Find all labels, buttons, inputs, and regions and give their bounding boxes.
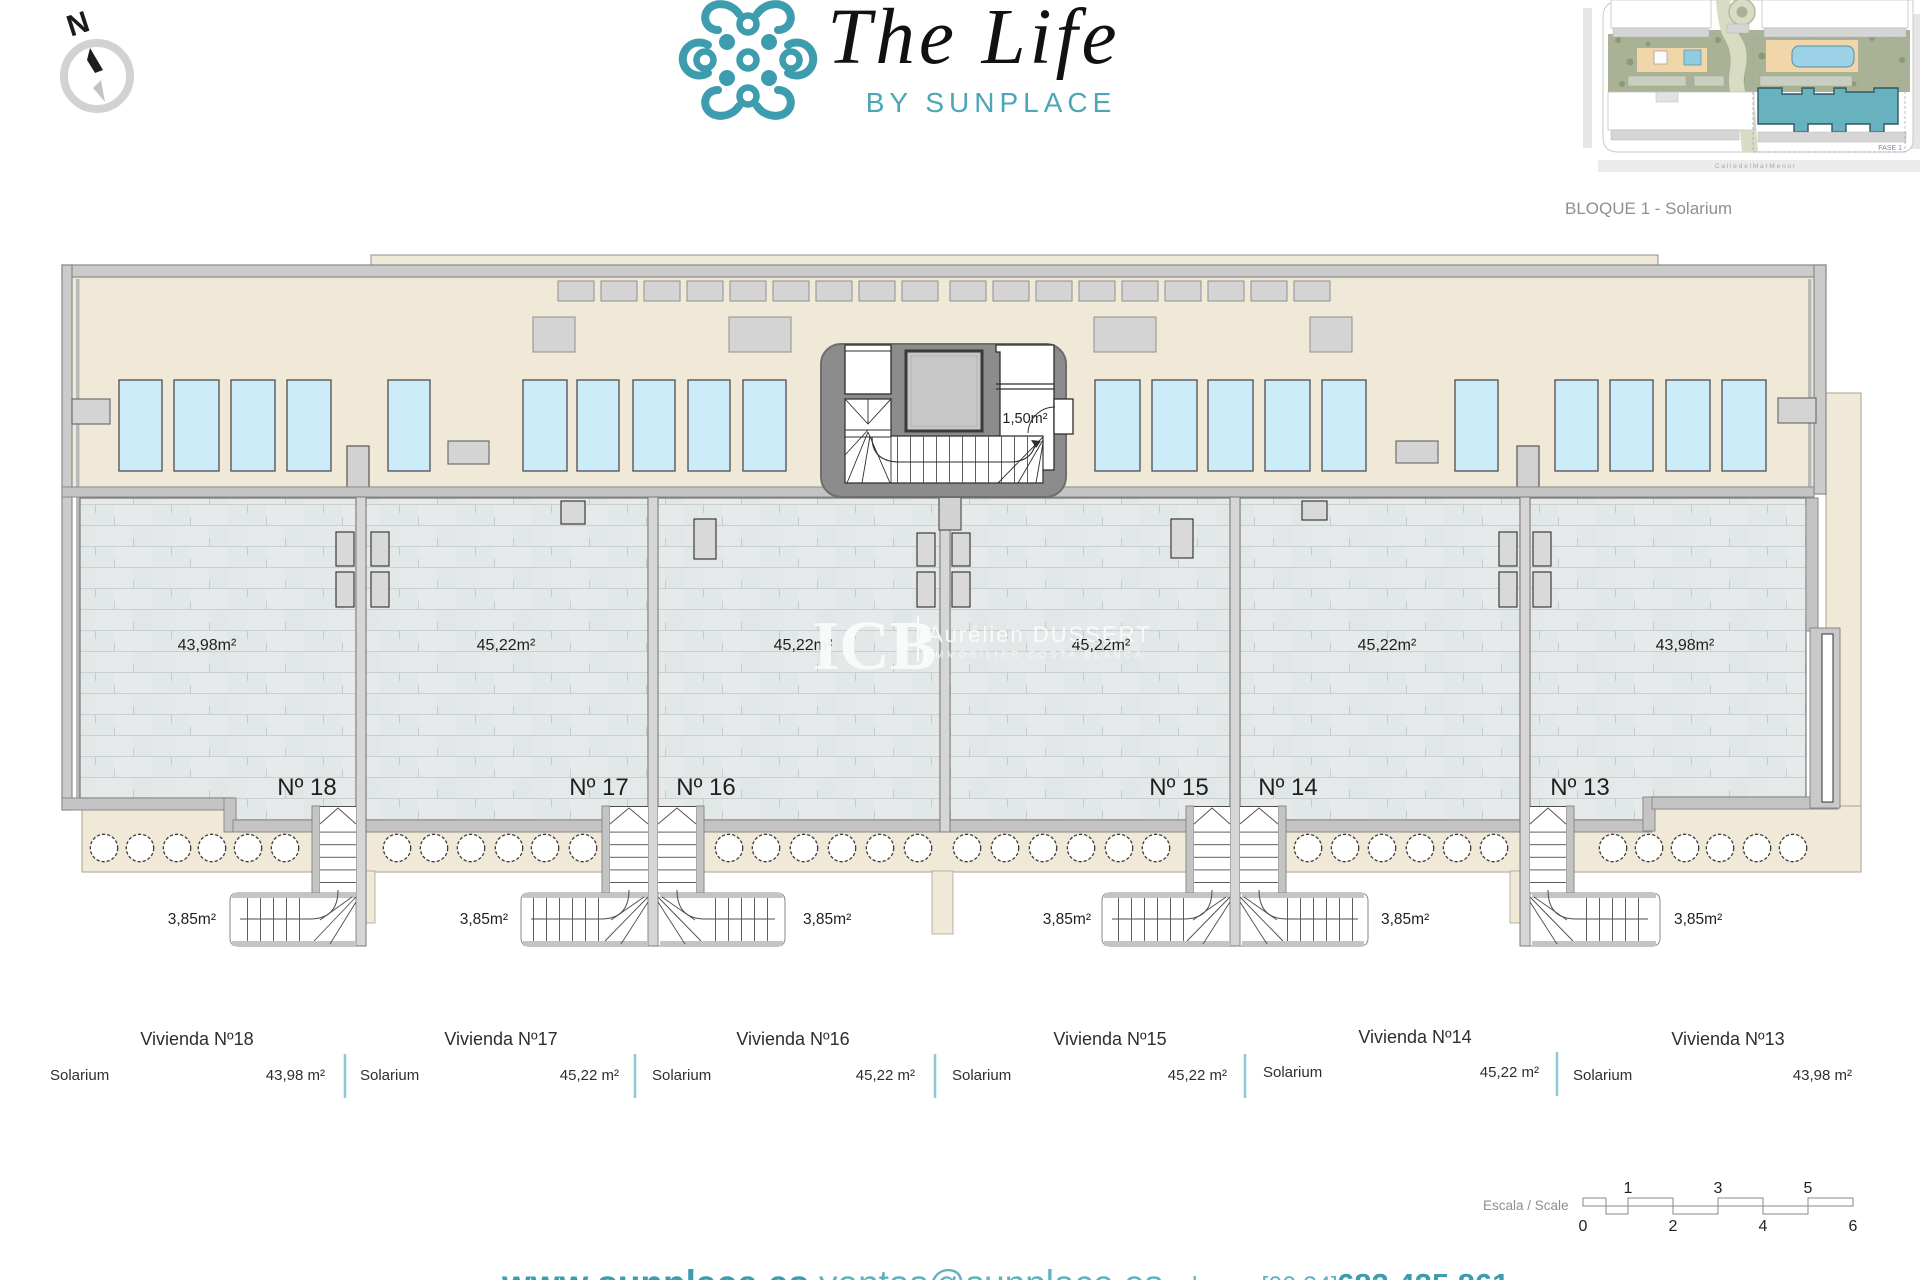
svg-text:43,98 m²: 43,98 m² <box>266 1067 325 1084</box>
svg-text:-: - <box>1146 1267 1157 1280</box>
svg-text:43,98m²: 43,98m² <box>178 637 237 654</box>
svg-text:C a l l e d e l M a r M e n: C a l l e d e l M a r M e n o r <box>1715 163 1796 170</box>
svg-text:3,85m²: 3,85m² <box>1043 911 1091 928</box>
svg-text:45,22 m²: 45,22 m² <box>1480 1064 1539 1081</box>
svg-text:1,50m²: 1,50m² <box>1002 411 1047 427</box>
svg-text:2: 2 <box>1669 1218 1678 1235</box>
svg-text:IMMOBILIER COSTA BLANCA: IMMOBILIER COSTA BLANCA <box>929 650 1145 661</box>
svg-text:Aurélien DUSSERT: Aurélien DUSSERT <box>928 622 1152 647</box>
svg-text:www.sunplace.es: www.sunplace.es <box>501 1263 809 1280</box>
svg-text:Nº 16: Nº 16 <box>676 774 735 801</box>
svg-text:Nº 15: Nº 15 <box>1149 774 1208 801</box>
svg-text:Solarium: Solarium <box>50 1067 109 1084</box>
svg-text:3,85m²: 3,85m² <box>803 911 851 928</box>
svg-text:Vivienda Nº18: Vivienda Nº18 <box>140 1029 253 1049</box>
svg-text:Solarium: Solarium <box>1263 1064 1322 1081</box>
svg-text:Nº 18: Nº 18 <box>277 774 336 801</box>
svg-text:phone: [00 34]: phone: [00 34] <box>1178 1272 1338 1280</box>
svg-text:The Life: The Life <box>827 0 1120 81</box>
svg-text:Vivienda Nº16: Vivienda Nº16 <box>736 1029 849 1049</box>
svg-text:43,98 m²: 43,98 m² <box>1793 1067 1852 1084</box>
svg-text:6: 6 <box>1849 1218 1858 1235</box>
svg-text:Vivienda Nº17: Vivienda Nº17 <box>444 1029 557 1049</box>
svg-text:Nº 17: Nº 17 <box>569 774 628 801</box>
svg-text:0: 0 <box>1579 1218 1588 1235</box>
svg-text:682 425 861: 682 425 861 <box>1337 1267 1509 1280</box>
svg-text:Solarium: Solarium <box>360 1067 419 1084</box>
svg-text:Vivienda Nº15: Vivienda Nº15 <box>1053 1029 1166 1049</box>
svg-text:45,22 m²: 45,22 m² <box>856 1067 915 1084</box>
svg-text:45,22 m²: 45,22 m² <box>560 1067 619 1084</box>
svg-text:3,85m²: 3,85m² <box>1381 911 1429 928</box>
svg-text:Solarium: Solarium <box>952 1067 1011 1084</box>
svg-text:BLOQUE 1 - Solarium: BLOQUE 1 - Solarium <box>1565 199 1732 218</box>
svg-text:-: - <box>788 1267 799 1280</box>
svg-text:Nº 13: Nº 13 <box>1550 774 1609 801</box>
svg-text:45,22m²: 45,22m² <box>477 637 536 654</box>
svg-text:3,85m²: 3,85m² <box>1674 911 1722 928</box>
svg-text:Vivienda Nº13: Vivienda Nº13 <box>1671 1029 1784 1049</box>
svg-text:1: 1 <box>1624 1180 1633 1197</box>
svg-text:3,85m²: 3,85m² <box>168 911 216 928</box>
svg-text:43,98m²: 43,98m² <box>1656 637 1715 654</box>
svg-text:3: 3 <box>1714 1180 1723 1197</box>
svg-text:ventas@sunplace.es: ventas@sunplace.es <box>819 1263 1163 1280</box>
svg-text:Nº 14: Nº 14 <box>1258 774 1317 801</box>
svg-text:FASE 1: FASE 1 <box>1878 145 1902 152</box>
svg-text:BY SUNPLACE: BY SUNPLACE <box>866 87 1117 118</box>
svg-text:45,22 m²: 45,22 m² <box>1168 1067 1227 1084</box>
svg-text:Solarium: Solarium <box>1573 1067 1632 1084</box>
svg-text:N: N <box>63 5 94 43</box>
svg-text:5: 5 <box>1804 1180 1813 1197</box>
svg-text:Escala / Scale: Escala / Scale <box>1483 1198 1569 1213</box>
svg-text:Solarium: Solarium <box>652 1067 711 1084</box>
svg-text:45,22m²: 45,22m² <box>1358 637 1417 654</box>
svg-text:Vivienda Nº14: Vivienda Nº14 <box>1358 1027 1471 1047</box>
svg-text:4: 4 <box>1759 1218 1768 1235</box>
svg-text:3,85m²: 3,85m² <box>460 911 508 928</box>
